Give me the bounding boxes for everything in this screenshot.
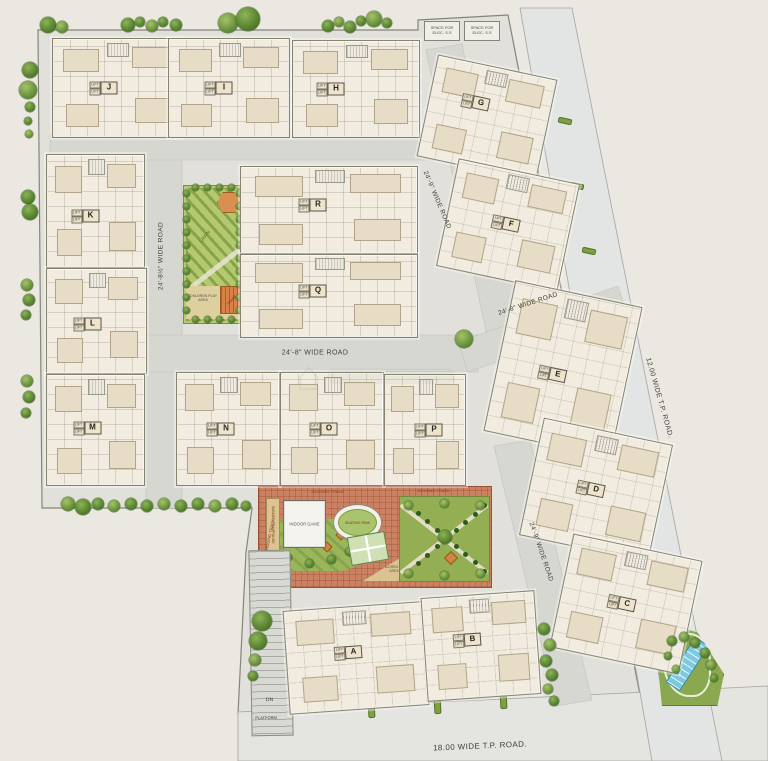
road-label: 12.00 WIDE T.P. ROAD. [644,357,674,439]
road-label: 24'-8" WIDE ROAD [497,291,558,317]
elec-substation-box: SPACE FOR ELEC. S.S [464,21,500,41]
elec-substation-box: SPACE FOR ELEC. S.S [424,21,460,41]
road-label: 18.00 WIDE T.P. ROAD. [433,739,527,752]
road-label: 24'-9" WIDE ROAD [528,521,555,582]
site-plan: LAWN CHILDREN PLAY AREA STAGE JOGGING TR… [0,0,768,761]
road-label: 24'-9" WIDE ROAD [422,170,453,230]
labels-layer: 24'-8½" WIDE ROAD24'-8" WIDE ROAD24'-9" … [0,0,768,761]
road-label: 24'-8½" WIDE ROAD [158,222,165,290]
road-label: 24'-8" WIDE ROAD [282,350,349,357]
